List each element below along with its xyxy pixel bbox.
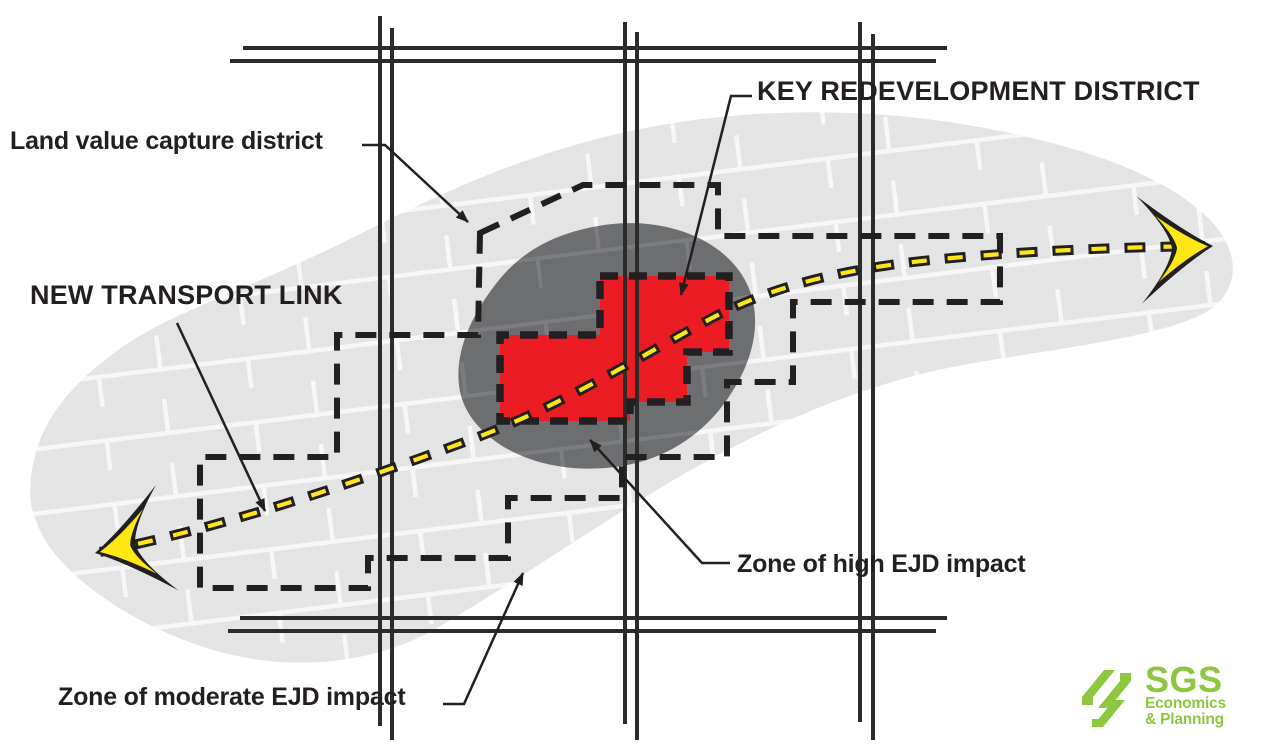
label-new-transport-link: NEW TRANSPORT LINK (30, 281, 343, 309)
sgs-logo-acronym: SGS (1145, 663, 1226, 696)
label-zone-high-impact: Zone of high EJD impact (737, 551, 1025, 577)
diagram-canvas (0, 0, 1262, 750)
diagram-stage: Land value capture district NEW TRANSPOR… (0, 0, 1262, 750)
label-land-value-capture: Land value capture district (10, 128, 323, 154)
label-zone-moderate-impact: Zone of moderate EJD impact (58, 684, 405, 710)
sgs-logo-text: SGS Economics & Planning (1145, 663, 1226, 728)
label-key-redevelopment-district: KEY REDEVELOPMENT DISTRICT (757, 77, 1200, 105)
sgs-logo-line1: Economics (1145, 696, 1226, 712)
sgs-logo-mark (1080, 663, 1138, 735)
sgs-logo-line2: & Planning (1145, 712, 1226, 728)
sgs-logo: SGS Economics & Planning (1080, 663, 1226, 735)
